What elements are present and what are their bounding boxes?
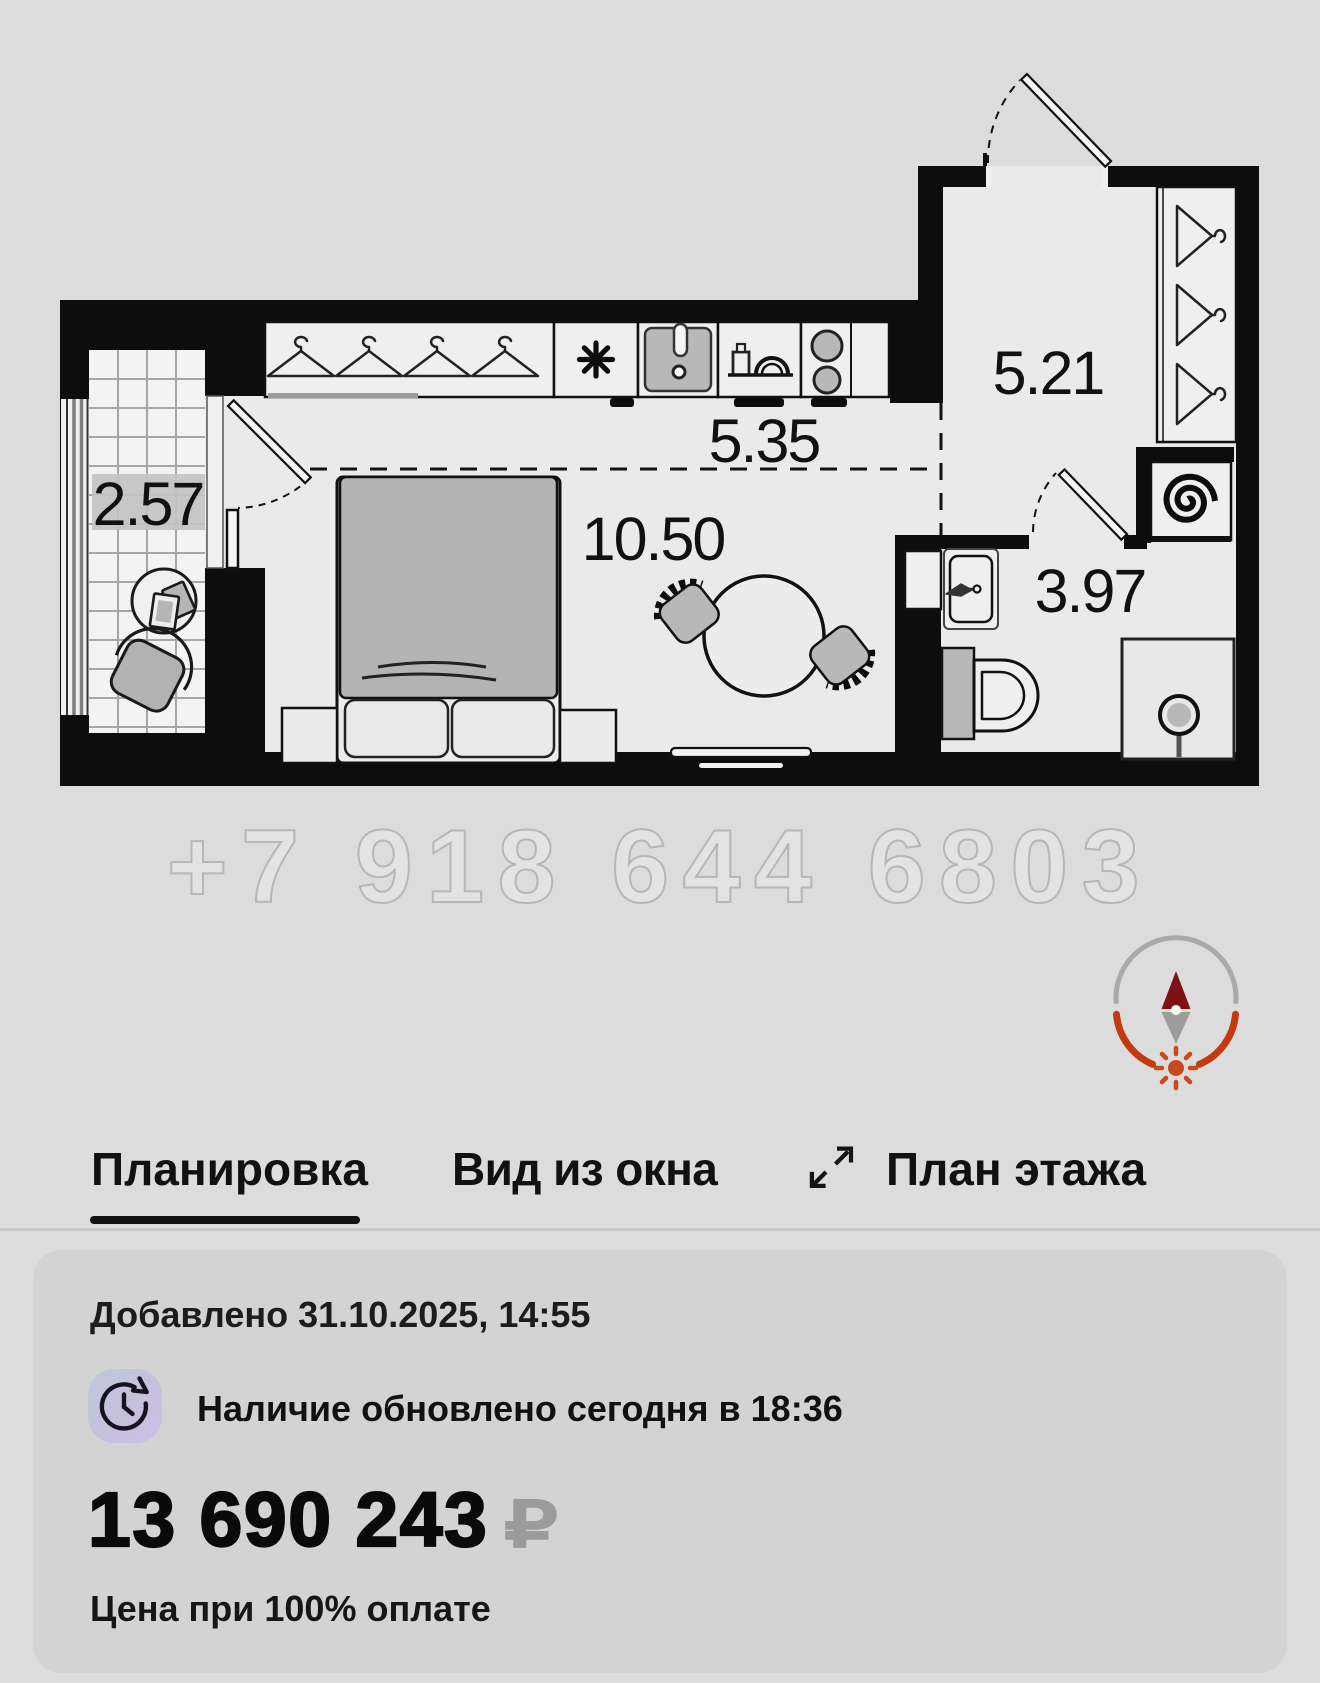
svg-text:3.97: 3.97 <box>1035 557 1146 625</box>
svg-text:10.50: 10.50 <box>582 505 725 573</box>
svg-text:5.35: 5.35 <box>709 407 820 475</box>
svg-text:2.57: 2.57 <box>93 470 204 538</box>
svg-text:+7 918 644 6803: +7 918 644 6803 <box>167 809 1153 925</box>
svg-text:5.21: 5.21 <box>993 339 1104 407</box>
